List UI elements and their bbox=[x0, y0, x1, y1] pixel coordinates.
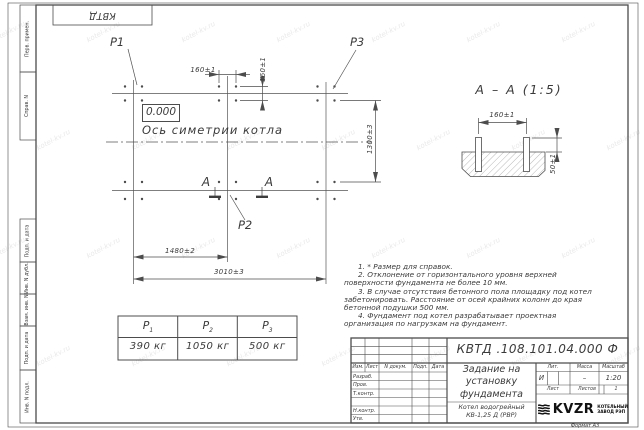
staff-n-kontr: Н.контр. bbox=[353, 408, 375, 414]
load-table-header-p2: Р2 bbox=[178, 319, 238, 334]
doc-subtitle: Котел водогрейный КВ-1,25 Д (РВР) bbox=[447, 404, 536, 420]
load-value-p3: 500 кг bbox=[237, 341, 297, 352]
dim-top-horizontal: 160±1 bbox=[188, 66, 218, 74]
mass-value: – bbox=[570, 374, 599, 382]
doc-title: Задание на установку фундамента bbox=[447, 364, 536, 401]
dim-top-vertical: 160±1 bbox=[259, 60, 267, 82]
stamp-perv-primen: Перв. примен. bbox=[20, 5, 36, 72]
stamp-podp-data-2: Подп. и дата bbox=[20, 326, 36, 370]
sheet-label: Лист bbox=[536, 387, 570, 392]
lit-value: И bbox=[536, 374, 547, 382]
stamp-inv-n-dubl: Инв. N дубл. bbox=[20, 262, 36, 294]
section-letter-right: А bbox=[262, 175, 276, 189]
drawing-sheet: { "watermark": "kotel-kv.ru", "frame": {… bbox=[0, 0, 644, 430]
doc-subtitle-line1: Котел водогрейный bbox=[447, 404, 536, 412]
mass-label: Масса bbox=[570, 365, 599, 370]
watermark-text: kotel-kv.ru bbox=[560, 236, 596, 260]
lit-label: Лит. bbox=[536, 365, 570, 370]
watermark-text: kotel-kv.ru bbox=[465, 20, 501, 44]
doc-title-line1: Задание на bbox=[447, 364, 536, 376]
watermark-text: kotel-kv.ru bbox=[510, 128, 546, 152]
kvzr-logo: KVZR КОТЕЛЬНЫЙ ЗАВОД РЭП bbox=[538, 397, 628, 421]
top-designation-rotated: КВТД .108.101.04.000 Ф bbox=[53, 5, 152, 25]
section-dim-height: 50±1 bbox=[549, 156, 557, 174]
dim-right-vertical: 1300±3 bbox=[366, 128, 374, 154]
sheets-label: Листов bbox=[570, 387, 604, 392]
stamp-sprav-n: Справ. N bbox=[20, 72, 36, 140]
staff-razrab: Разраб. bbox=[353, 374, 373, 380]
dim-bottom-inner: 1480±2 bbox=[157, 247, 203, 255]
rev-header-n-dokum: N докум. bbox=[379, 365, 412, 370]
p1-sub: 1 bbox=[149, 327, 153, 334]
load-table-header-p1: Р1 bbox=[118, 319, 178, 334]
scale-label: Масштаб bbox=[599, 365, 628, 370]
watermark-text: kotel-kv.ru bbox=[370, 20, 406, 44]
format-note: Формат А3 bbox=[555, 423, 615, 429]
watermark-text: kotel-kv.ru bbox=[370, 236, 406, 260]
scale-value: 1:20 bbox=[599, 374, 628, 382]
dim-bottom-outer: 3010±3 bbox=[206, 268, 252, 276]
rev-header-podp: Подп. bbox=[412, 365, 429, 370]
p3-base: Р bbox=[262, 319, 269, 332]
elevation-mark: 0.000 bbox=[142, 104, 180, 122]
staff-utv: Утв. bbox=[353, 416, 364, 422]
watermark-text: kotel-kv.ru bbox=[320, 128, 356, 152]
load-value-p1: 390 кг bbox=[118, 341, 178, 352]
watermark-text: kotel-kv.ru bbox=[560, 20, 596, 44]
staff-prov: Пров. bbox=[353, 382, 368, 388]
plan-label-p3: Р3 bbox=[350, 35, 364, 49]
rev-header-izm: Изм. bbox=[351, 365, 365, 370]
sheets-value: 1 bbox=[604, 387, 628, 392]
section-letter-left: А bbox=[199, 175, 213, 189]
kvzr-logo-caption: КОТЕЛЬНЫЙ ЗАВОД РЭП bbox=[597, 404, 628, 414]
watermark-text: kotel-kv.ru bbox=[180, 20, 216, 44]
kvzr-logo-icon bbox=[538, 403, 550, 416]
load-value-p2: 1050 кг bbox=[178, 341, 238, 352]
rev-header-list: Лист bbox=[365, 365, 379, 370]
watermark-text: kotel-kv.ru bbox=[275, 20, 311, 44]
stamp-podp-data-1: Подп. и дата bbox=[20, 219, 36, 262]
load-table-header-p3: Р3 bbox=[237, 319, 297, 334]
watermark-text: kotel-kv.ru bbox=[35, 344, 71, 368]
note-3: 3. В случае отсутствия бетонного пола пл… bbox=[344, 288, 606, 313]
kvzr-logo-text: KVZR bbox=[553, 402, 595, 417]
notes-block: 1. * Размер для справок. 2. Отклонение о… bbox=[344, 263, 606, 329]
section-dim-width: 160±1 bbox=[489, 111, 515, 119]
staff-t-kontr: Т.контр. bbox=[353, 391, 375, 397]
stamp-vzam-inv-n: Взам. инв. N bbox=[20, 294, 36, 326]
watermark-text: kotel-kv.ru bbox=[275, 236, 311, 260]
kvzr-caption-line2: ЗАВОД РЭП bbox=[597, 409, 628, 414]
p2-sub: 2 bbox=[209, 327, 213, 334]
symmetry-axis-label: Ось симетрии котла bbox=[142, 123, 283, 137]
doc-title-line2: установку bbox=[447, 376, 536, 388]
rev-header-data: Дата bbox=[429, 365, 447, 370]
section-view-title: А – А (1:5) bbox=[462, 82, 576, 97]
stamp-inv-n-podl: Инв. N подл. bbox=[20, 370, 36, 423]
watermark-text: kotel-kv.ru bbox=[35, 128, 71, 152]
note-2: 2. Отклонение от горизонтального уровня … bbox=[344, 271, 606, 287]
plan-label-p2: Р2 bbox=[238, 218, 252, 232]
watermark-text: kotel-kv.ru bbox=[605, 128, 641, 152]
watermark-text: kotel-kv.ru bbox=[465, 236, 501, 260]
watermark-text: kotel-kv.ru bbox=[85, 236, 121, 260]
watermark-text: kotel-kv.ru bbox=[415, 128, 451, 152]
titleblock-designation: КВТД .108.101.04.000 Ф bbox=[449, 342, 626, 356]
p3-sub: 3 bbox=[269, 327, 273, 334]
doc-title-line3: фундамента bbox=[447, 389, 536, 401]
note-4: 4. Фундамент под котел разрабатывает про… bbox=[344, 312, 606, 328]
doc-subtitle-line2: КВ-1,25 Д (РВР) bbox=[447, 412, 536, 420]
plan-label-p1: Р1 bbox=[110, 35, 124, 49]
